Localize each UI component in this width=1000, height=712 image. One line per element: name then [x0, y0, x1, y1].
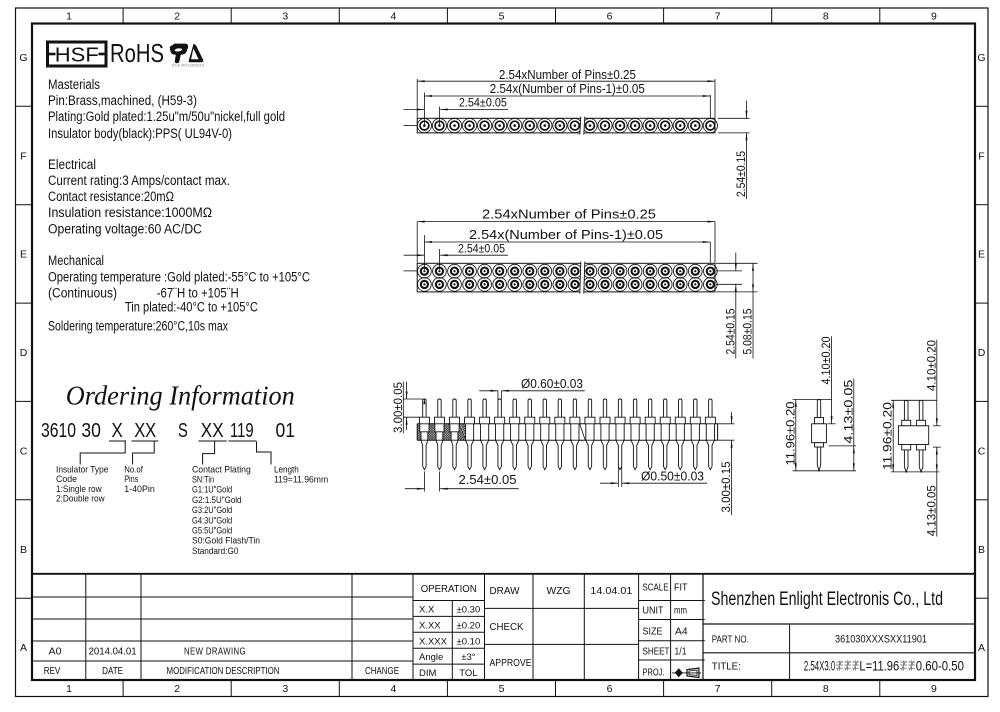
svg-text:CHANGE: CHANGE [365, 666, 399, 677]
svg-text:S: S [178, 420, 188, 442]
svg-text:D: D [978, 347, 986, 359]
svg-text:G: G [977, 52, 985, 64]
svg-text:4.10±0.20: 4.10±0.20 [924, 340, 938, 391]
svg-text:D: D [20, 347, 28, 359]
svg-text:Standard:G0: Standard:G0 [192, 546, 238, 557]
svg-text:RoHS: RoHS [110, 38, 164, 68]
svg-text:XX: XX [134, 420, 156, 442]
svg-text:A: A [20, 642, 27, 654]
svg-text:6: 6 [607, 11, 613, 23]
svg-text:MODIFICATION DESCRIPTION: MODIFICATION DESCRIPTION [167, 666, 280, 677]
svg-text:2: 2 [174, 683, 180, 695]
svg-text:PROJ.: PROJ. [643, 668, 665, 679]
svg-text:5: 5 [499, 11, 505, 23]
svg-text:NEW DRAWING: NEW DRAWING [184, 647, 246, 658]
svg-text:Ø0.60±0.03: Ø0.60±0.03 [521, 376, 583, 391]
svg-text:Soldering temperature:260°C,10: Soldering temperature:260°C,10s max [48, 319, 228, 334]
svg-text:Ordering Information: Ordering Information [66, 380, 295, 410]
svg-text:4.10±0.20: 4.10±0.20 [819, 336, 833, 384]
svg-text:Contact resistance:20mΩ: Contact resistance:20mΩ [48, 189, 174, 204]
svg-text:UNIT: UNIT [643, 606, 664, 617]
svg-text:7: 7 [715, 683, 721, 695]
svg-text:X.X: X.X [419, 605, 435, 616]
svg-text:SCALE: SCALE [643, 583, 669, 594]
svg-text:1/1: 1/1 [675, 647, 687, 658]
svg-text:3: 3 [282, 683, 288, 695]
svg-text:F: F [978, 150, 984, 162]
svg-text:2.54x(Number of Pins-1)±0.05: 2.54x(Number of Pins-1)±0.05 [469, 227, 663, 242]
svg-text:FIT: FIT [674, 583, 688, 594]
svg-text:4: 4 [390, 11, 396, 23]
svg-text:CHECK: CHECK [490, 622, 524, 633]
svg-text:X.XX: X.XX [419, 620, 441, 631]
svg-text:2.54±0.15: 2.54±0.15 [723, 308, 737, 354]
svg-text:Insulator body(black):PPS( UL9: Insulator body(black):PPS( UL94V-0) [48, 126, 232, 141]
svg-text:5.08±0.15: 5.08±0.15 [741, 308, 755, 354]
svg-text:5: 5 [499, 683, 505, 695]
svg-text:7: 7 [715, 11, 721, 23]
svg-text:Ø0.50±0.03: Ø0.50±0.03 [641, 468, 704, 483]
svg-text:X.XXX: X.XXX [419, 636, 448, 647]
svg-text:WZG: WZG [547, 586, 571, 597]
svg-text:2: 2 [174, 11, 180, 23]
svg-text:8: 8 [823, 683, 829, 695]
svg-text:DIM: DIM [419, 668, 437, 679]
svg-text:OPERATION: OPERATION [421, 584, 477, 595]
svg-text:±0.10: ±0.10 [457, 636, 481, 647]
svg-text:01: 01 [276, 420, 296, 442]
svg-text:Tin plated:-40°C to +105°C: Tin plated:-40°C to +105°C [125, 299, 258, 314]
svg-text:E: E [978, 249, 985, 261]
svg-text:2.54±0.05: 2.54±0.05 [459, 96, 507, 110]
svg-text:Electrical: Electrical [48, 157, 96, 172]
svg-text:A: A [978, 642, 985, 654]
svg-text:TITLE:: TITLE: [712, 661, 741, 673]
svg-text:14.04.01: 14.04.01 [590, 586, 632, 597]
svg-text:Operating temperature :Gold pl: Operating temperature :Gold plated:-55°C… [48, 269, 310, 284]
svg-text:PART NO.: PART NO. [712, 634, 749, 646]
svg-text:6: 6 [607, 683, 613, 695]
svg-text:XX: XX [201, 420, 224, 442]
svg-text:FILE NO E302613: FILE NO E302613 [172, 63, 205, 68]
svg-text:1: 1 [66, 11, 72, 23]
svg-text:2.54±0.15: 2.54±0.15 [734, 151, 748, 197]
svg-text:mm: mm [674, 606, 687, 617]
svg-text:4.13±0.05: 4.13±0.05 [841, 379, 855, 443]
svg-text:±3°: ±3° [461, 652, 475, 663]
svg-text:11.96±0.20: 11.96±0.20 [881, 402, 895, 470]
svg-text:A0: A0 [49, 647, 62, 658]
svg-text:0.60-0.50: 0.60-0.50 [916, 659, 964, 674]
svg-text:4: 4 [390, 683, 396, 695]
svg-text:X: X [111, 420, 122, 442]
svg-text:1-40Pin: 1-40Pin [124, 484, 155, 495]
svg-text:361030XXXSXX11901: 361030XXXSXX11901 [835, 634, 927, 646]
svg-text:SIZE: SIZE [643, 627, 663, 638]
svg-text:119=11.96mm: 119=11.96mm [274, 475, 328, 486]
svg-text:Insulation resistance:1000MΩ: Insulation resistance:1000MΩ [48, 205, 212, 220]
svg-text:2.54±0.05: 2.54±0.05 [459, 472, 517, 487]
svg-text:4.13±0.05: 4.13±0.05 [924, 485, 938, 536]
svg-text:3610: 3610 [41, 420, 76, 442]
svg-text:3.00±0.05: 3.00±0.05 [391, 382, 405, 433]
svg-text:C: C [20, 445, 28, 457]
svg-text:8: 8 [823, 11, 829, 23]
svg-text:TOL: TOL [459, 668, 477, 679]
svg-text:2.54±0.05: 2.54±0.05 [458, 242, 505, 256]
svg-text:±0.30: ±0.30 [457, 605, 481, 616]
svg-text:HSF: HSF [55, 45, 99, 67]
svg-text:APPROVE: APPROVE [490, 658, 532, 669]
svg-text:2014.04.01: 2014.04.01 [89, 647, 137, 658]
svg-text:11.96±0.20: 11.96±0.20 [783, 401, 797, 465]
svg-text:2.54xNumber of Pins±0.25: 2.54xNumber of Pins±0.25 [499, 67, 636, 82]
svg-text:B: B [20, 544, 27, 556]
svg-text:A4: A4 [675, 627, 688, 638]
svg-text:Operating voltage:60 AC/DC: Operating voltage:60 AC/DC [48, 221, 202, 236]
svg-text:119: 119 [230, 420, 254, 442]
svg-text:E: E [20, 249, 27, 261]
svg-text:C: C [978, 445, 986, 457]
svg-text:L=11.96: L=11.96 [859, 659, 899, 674]
svg-text:2:Double row: 2:Double row [56, 494, 105, 505]
svg-text:9: 9 [931, 11, 937, 23]
svg-text:2.54xNumber of Pins±0.25: 2.54xNumber of Pins±0.25 [482, 206, 656, 221]
svg-text:30: 30 [81, 420, 101, 442]
svg-text:B: B [978, 544, 985, 556]
svg-text:REV: REV [44, 666, 61, 677]
svg-text:F: F [20, 150, 26, 162]
svg-text:Mechanical: Mechanical [48, 253, 104, 268]
svg-text:Plating:Gold plated:1.25u"m/50: Plating:Gold plated:1.25u"m/50u"nickel,f… [48, 109, 285, 124]
svg-text:9: 9 [931, 683, 937, 695]
svg-text:Shenzhen Enlight Electronis Co: Shenzhen Enlight Electronis Co., Ltd [711, 588, 943, 610]
svg-text:2.54X3.0: 2.54X3.0 [804, 659, 835, 674]
svg-text:G: G [19, 52, 27, 64]
svg-text:DATE: DATE [102, 666, 123, 677]
svg-text:DRAW: DRAW [490, 586, 521, 597]
svg-text:SHEET: SHEET [643, 647, 670, 658]
svg-text:(Continuous): (Continuous) [48, 286, 117, 301]
svg-text:Masterials: Masterials [48, 77, 100, 92]
svg-text:3.00±0.15: 3.00±0.15 [719, 461, 733, 512]
svg-text:3: 3 [282, 11, 288, 23]
svg-text:±0.20: ±0.20 [457, 620, 481, 631]
svg-text:Angle: Angle [419, 652, 443, 663]
svg-text:1: 1 [66, 683, 72, 695]
svg-text:Pin:Brass,machined, (H59-3): Pin:Brass,machined, (H59-3) [48, 93, 197, 108]
svg-text:Current rating:3 Amps/contact: Current rating:3 Amps/contact max. [48, 173, 230, 188]
svg-text:2.54x(Number of Pins-1)±0.05: 2.54x(Number of Pins-1)±0.05 [490, 81, 645, 96]
